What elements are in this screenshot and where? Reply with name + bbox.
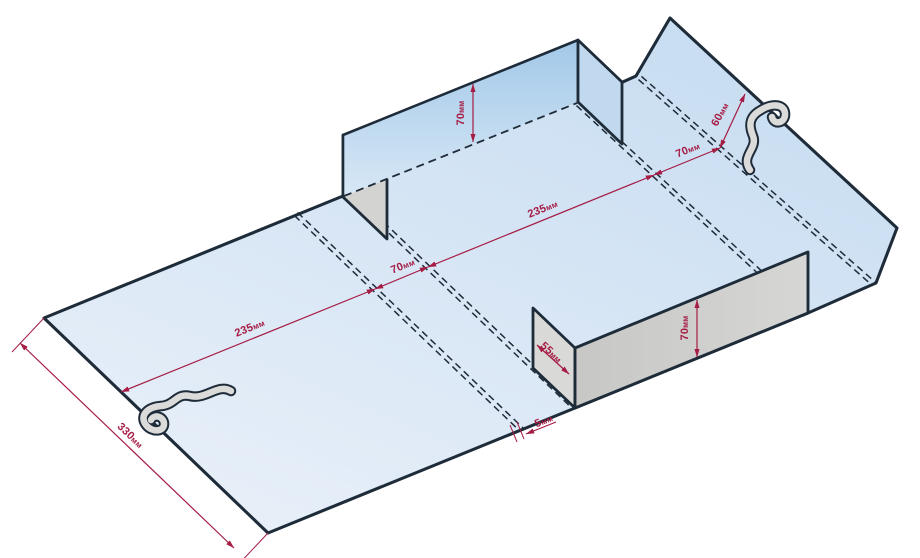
box-dieline-isometric-drawing: 235мм 70мм 235мм 70мм 60мм 70 <box>0 0 920 558</box>
dim-front-wall-height-label: 70мм <box>679 316 691 341</box>
dim-back-wall-height-label: 70мм <box>455 101 467 126</box>
dieline-diagram-page: 235мм 70мм 235мм 70мм 60мм 70 <box>0 0 920 558</box>
